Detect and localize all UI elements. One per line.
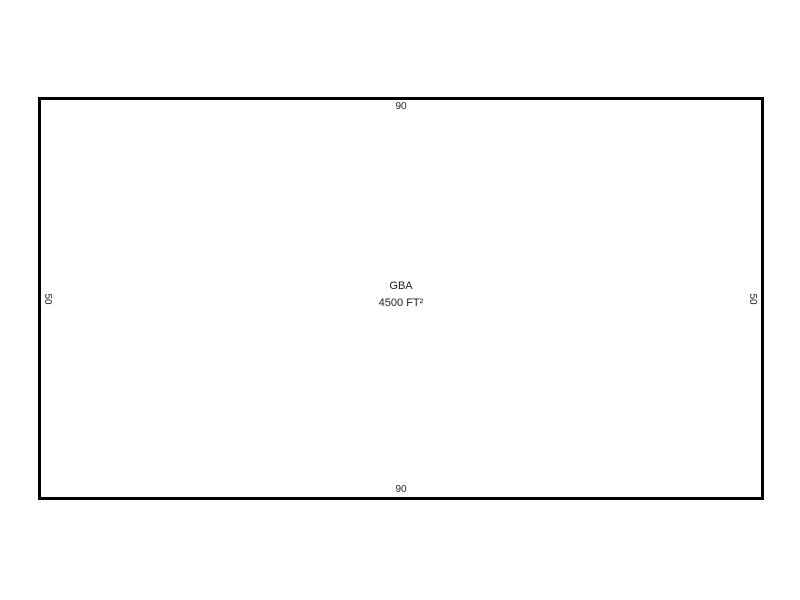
- dimension-label-right: 50: [747, 293, 757, 304]
- building-outline: 90 90 50 50 GBA 4500 FT²: [38, 97, 764, 500]
- area-value: 4500 FT²: [379, 295, 424, 312]
- area-label: GBA: [379, 278, 424, 295]
- dimension-label-top: 90: [395, 102, 406, 112]
- dimension-label-bottom: 90: [395, 485, 406, 495]
- area-annotation: GBA 4500 FT²: [379, 278, 424, 312]
- sketch-canvas: 90 90 50 50 GBA 4500 FT²: [0, 0, 800, 600]
- dimension-label-left: 50: [42, 293, 52, 304]
